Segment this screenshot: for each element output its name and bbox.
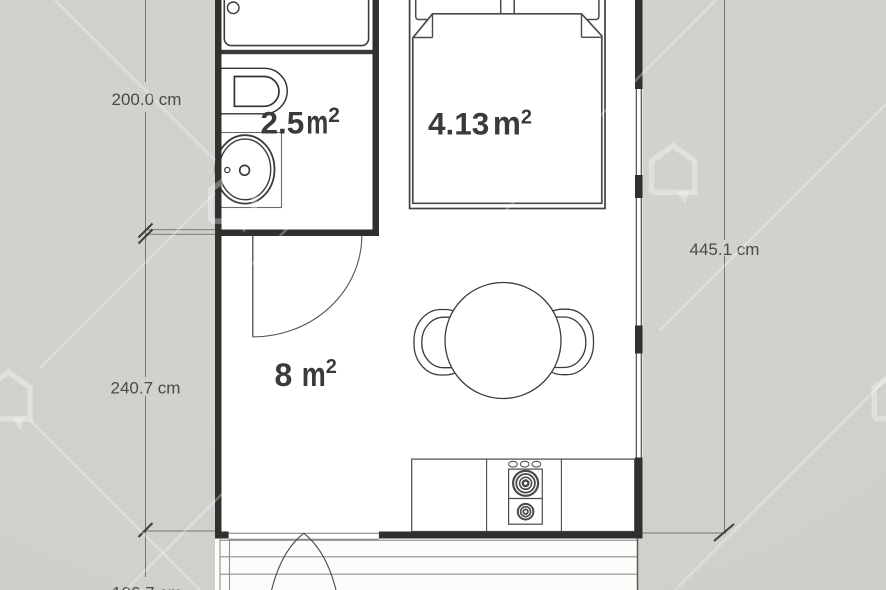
svg-text:240.7 cm: 240.7 cm [111, 378, 181, 397]
svg-text:445.1 cm: 445.1 cm [690, 240, 760, 259]
svg-text:2.5m2: 2.5m2 [261, 103, 340, 140]
svg-text:4.13m2: 4.13m2 [428, 104, 532, 141]
svg-text:106.7 cm: 106.7 cm [112, 584, 182, 590]
